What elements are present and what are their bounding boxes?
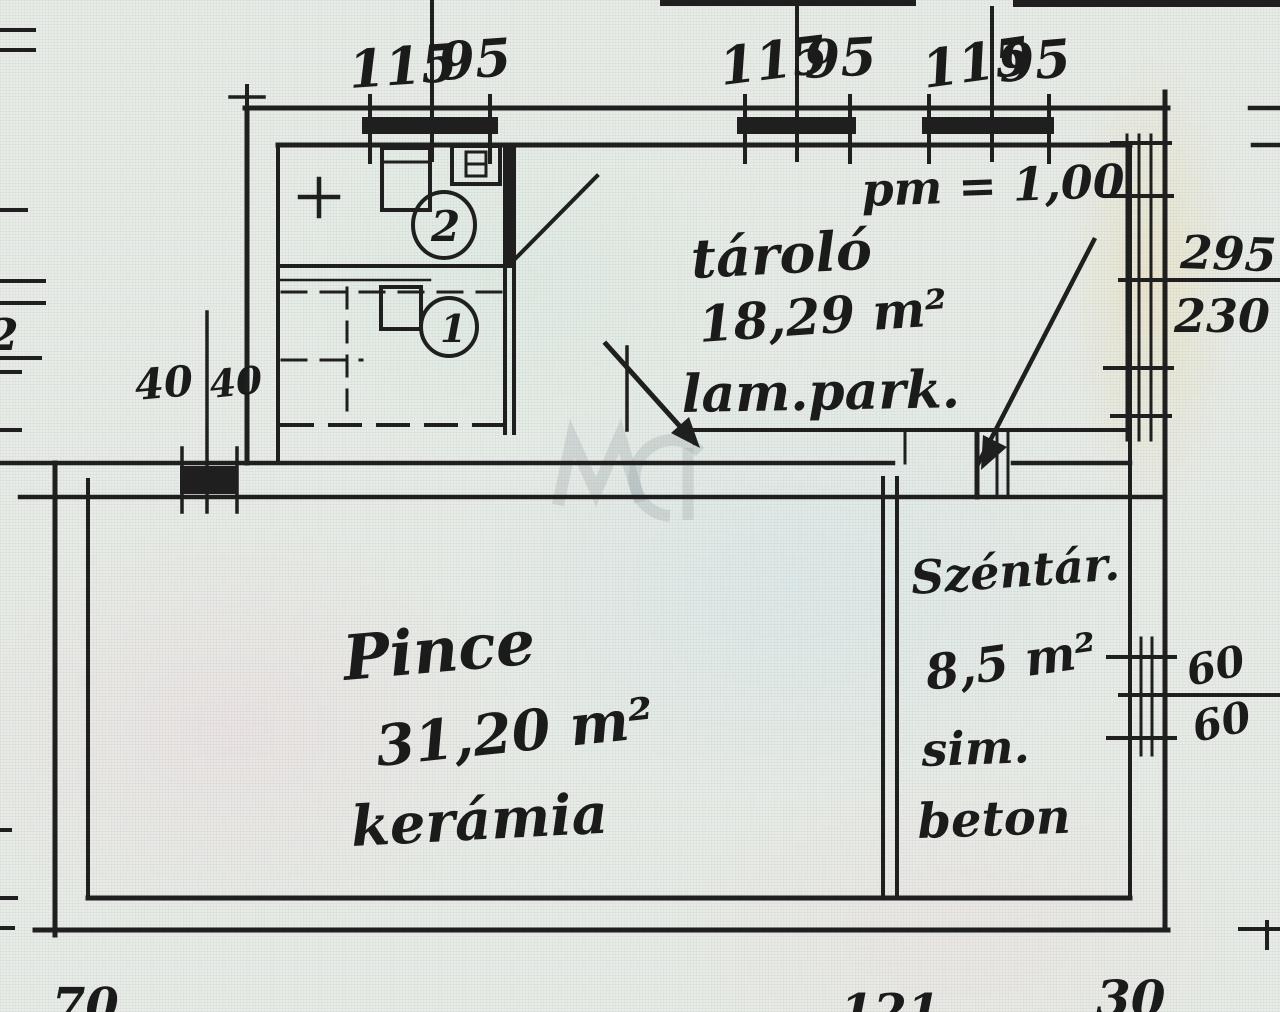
scanned-floor-plan: 2 <box>0 0 1280 1012</box>
right-window-lower: 60 60 <box>1108 636 1280 755</box>
top-window-3: 115 95 <box>918 8 1073 162</box>
partition-wall <box>883 478 897 898</box>
pince-floor: kerámia <box>349 781 609 860</box>
dim-top-w3-95: 95 <box>996 28 1073 95</box>
top-window-2: 115 95 <box>716 0 878 162</box>
stair-flight-upper-number: 2 <box>430 202 460 251</box>
bottom-dims: 70 121 30 <box>52 969 1166 1012</box>
dim-right-upper-230: 230 <box>1173 289 1270 343</box>
pince-area: 31,20 m² <box>373 685 657 780</box>
plus-mark <box>300 179 338 216</box>
pince-name: Pince <box>338 605 538 695</box>
szentar-floor-a: sim. <box>919 719 1030 777</box>
szentar-floor-b: beton <box>916 789 1071 850</box>
dim-left-w-40a: 40 <box>133 356 196 410</box>
dim-top-w2-95: 95 <box>802 26 877 91</box>
upper-left-rooms: 2 1 <box>278 143 597 433</box>
dim-right-lower-60a: 60 <box>1182 636 1249 696</box>
annotation-pm: pm = 1,00 <box>860 154 1125 217</box>
edge-partial-dim: 2 <box>0 310 19 361</box>
dim-top-w1-95: 95 <box>437 27 513 93</box>
tarolo-floor: lam.park. <box>681 359 960 425</box>
dim-bottom-30: 30 <box>1096 969 1166 1012</box>
room-szentar-label: Széntár. 8,5 m² sim. beton <box>909 537 1121 850</box>
dim-bottom-121: 121 <box>840 984 940 1012</box>
dim-left-w-40b: 40 <box>207 357 265 407</box>
stair-flight-lower-badge: 1 <box>421 298 477 356</box>
szentar-area: 8,5 m² <box>921 622 1100 702</box>
floor-plan-canvas: 2 <box>0 0 1280 1012</box>
fixture-sink <box>452 146 500 184</box>
dim-bottom-70: 70 <box>52 978 119 1012</box>
tarolo-name: tároló <box>689 218 873 291</box>
dim-right-upper-295: 295 <box>1179 225 1278 282</box>
stair-flight-upper-badge: 2 <box>413 192 475 258</box>
room-pince-label: Pince 31,20 m² kerámia <box>338 605 657 860</box>
szentar-name: Széntár. <box>909 537 1121 605</box>
dim-right-lower-60b: 60 <box>1188 692 1255 752</box>
stair-flight-lower-number: 1 <box>440 306 466 351</box>
top-window-1: 115 95 <box>347 0 513 162</box>
pm-text: pm = 1,00 <box>860 154 1125 217</box>
room-tarolo-label: tároló 18,29 m² lam.park. <box>681 218 960 425</box>
tarolo-area: 18,29 m² <box>697 278 949 354</box>
watermark <box>558 436 700 520</box>
